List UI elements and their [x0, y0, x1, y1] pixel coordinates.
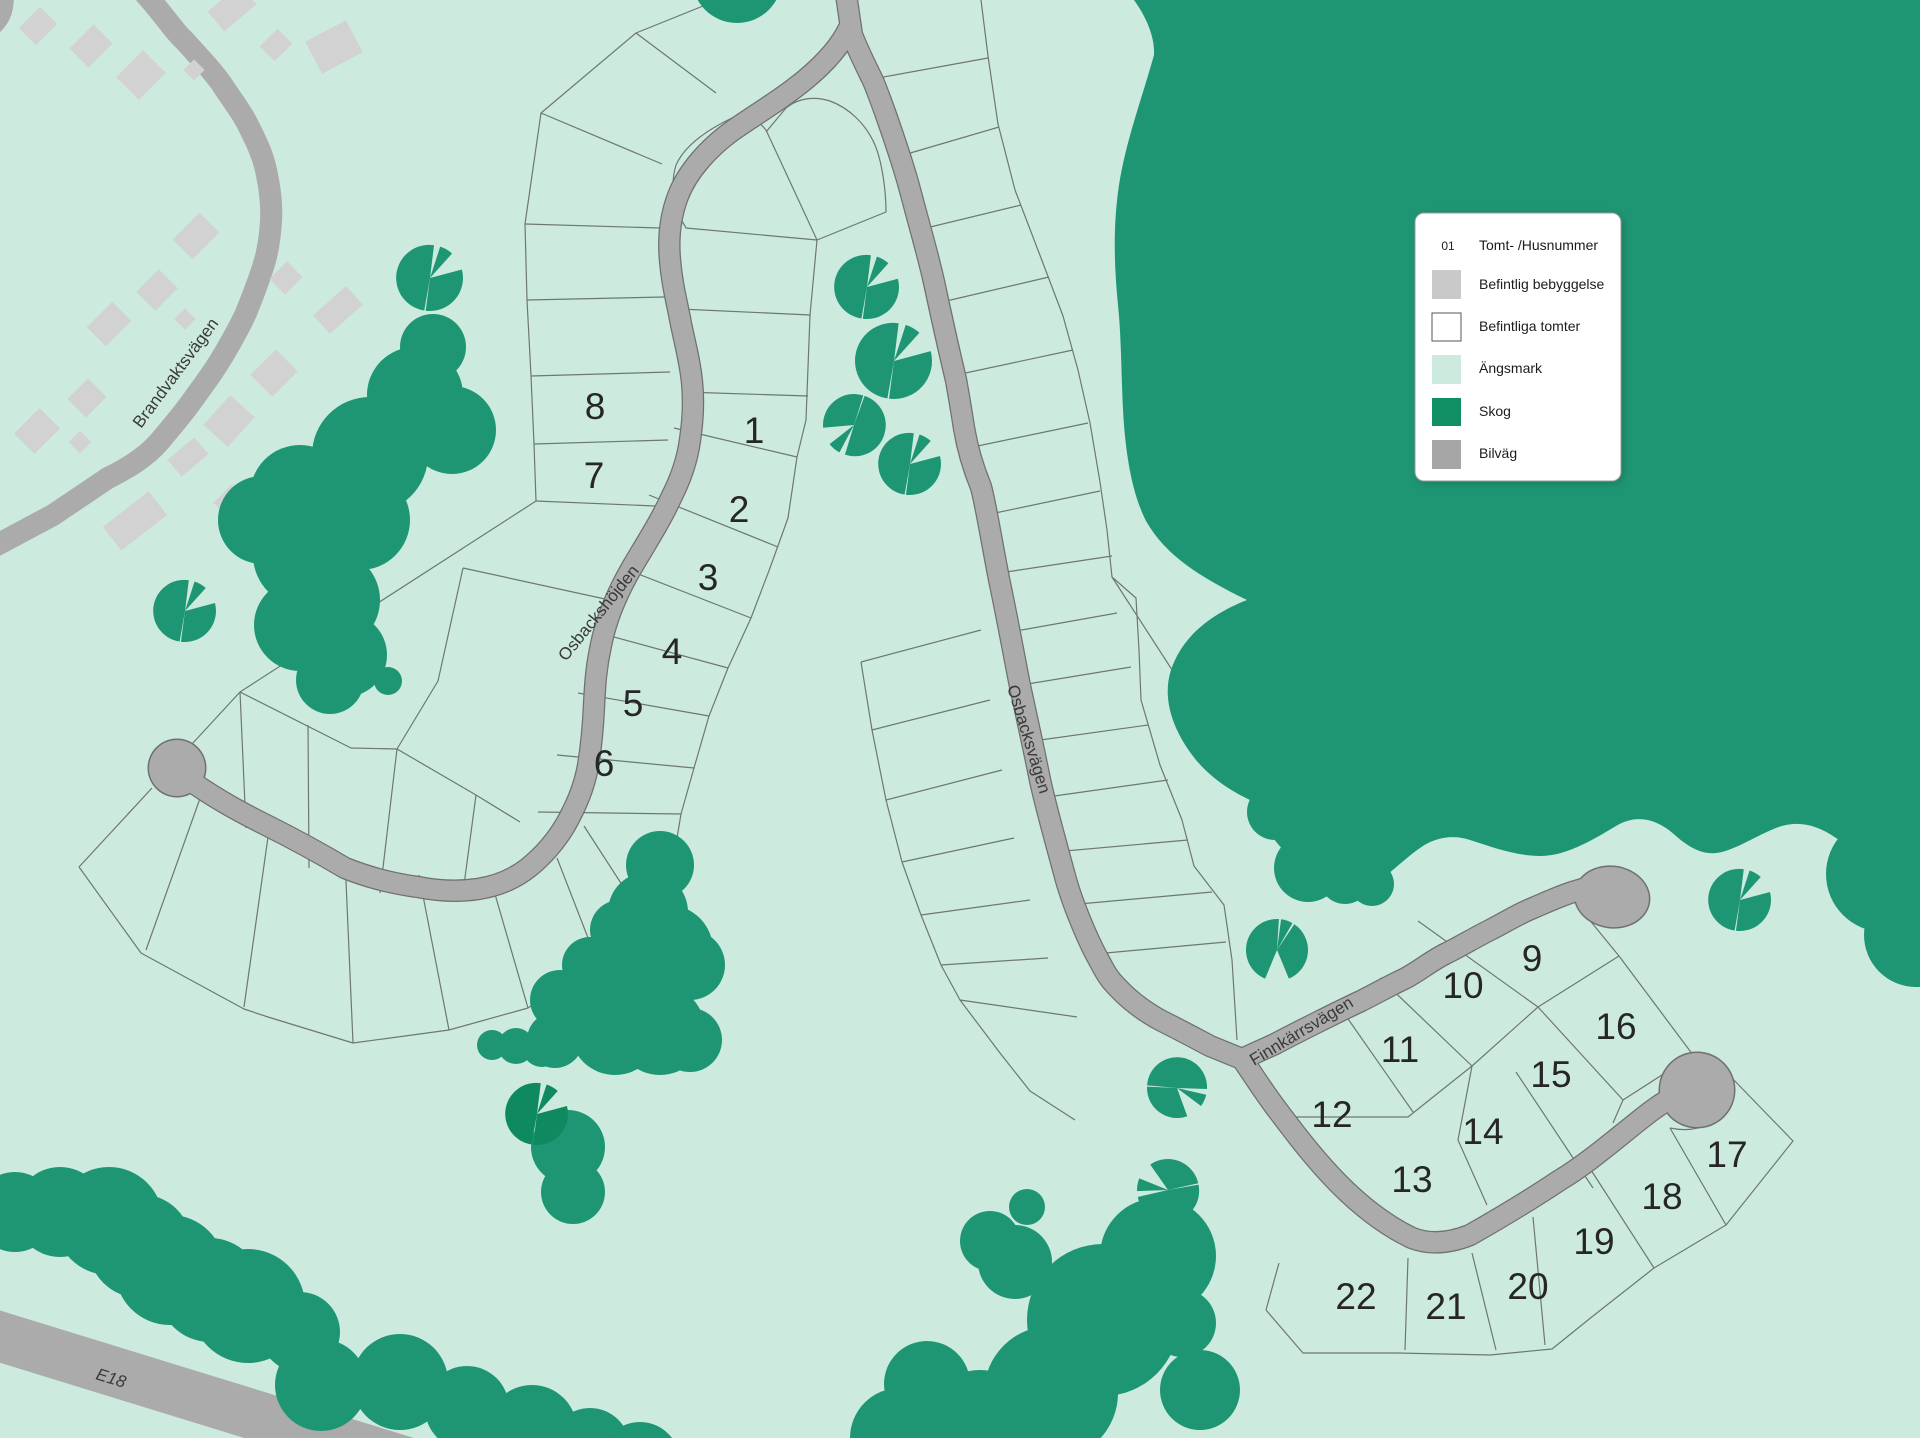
svg-text:9: 9: [1522, 938, 1543, 979]
svg-text:12: 12: [1311, 1094, 1352, 1135]
svg-text:4: 4: [662, 631, 683, 672]
svg-text:2: 2: [729, 489, 750, 530]
svg-text:15: 15: [1530, 1054, 1571, 1095]
svg-text:3: 3: [698, 557, 719, 598]
svg-text:5: 5: [623, 683, 644, 724]
svg-text:01: 01: [1441, 239, 1455, 253]
svg-text:21: 21: [1425, 1286, 1466, 1327]
svg-text:11: 11: [1381, 1029, 1419, 1070]
svg-text:13: 13: [1391, 1159, 1432, 1200]
svg-text:Befintliga tomter: Befintliga tomter: [1479, 318, 1580, 334]
svg-text:8: 8: [585, 386, 606, 427]
svg-text:Befintlig bebyggelse: Befintlig bebyggelse: [1479, 276, 1605, 292]
svg-text:Bilväg: Bilväg: [1479, 445, 1517, 461]
svg-text:17: 17: [1706, 1134, 1747, 1175]
svg-text:14: 14: [1462, 1111, 1503, 1152]
svg-text:1: 1: [744, 410, 765, 451]
svg-text:Ängsmark: Ängsmark: [1479, 360, 1543, 376]
svg-text:Tomt- /Husnummer: Tomt- /Husnummer: [1479, 237, 1598, 253]
svg-text:16: 16: [1595, 1006, 1636, 1047]
svg-text:20: 20: [1507, 1266, 1548, 1307]
svg-text:10: 10: [1442, 965, 1483, 1006]
svg-text:19: 19: [1573, 1221, 1614, 1262]
svg-text:Skog: Skog: [1479, 403, 1511, 419]
svg-text:7: 7: [584, 455, 605, 496]
svg-text:6: 6: [594, 743, 615, 784]
svg-text:18: 18: [1641, 1176, 1682, 1217]
svg-text:22: 22: [1335, 1276, 1376, 1317]
